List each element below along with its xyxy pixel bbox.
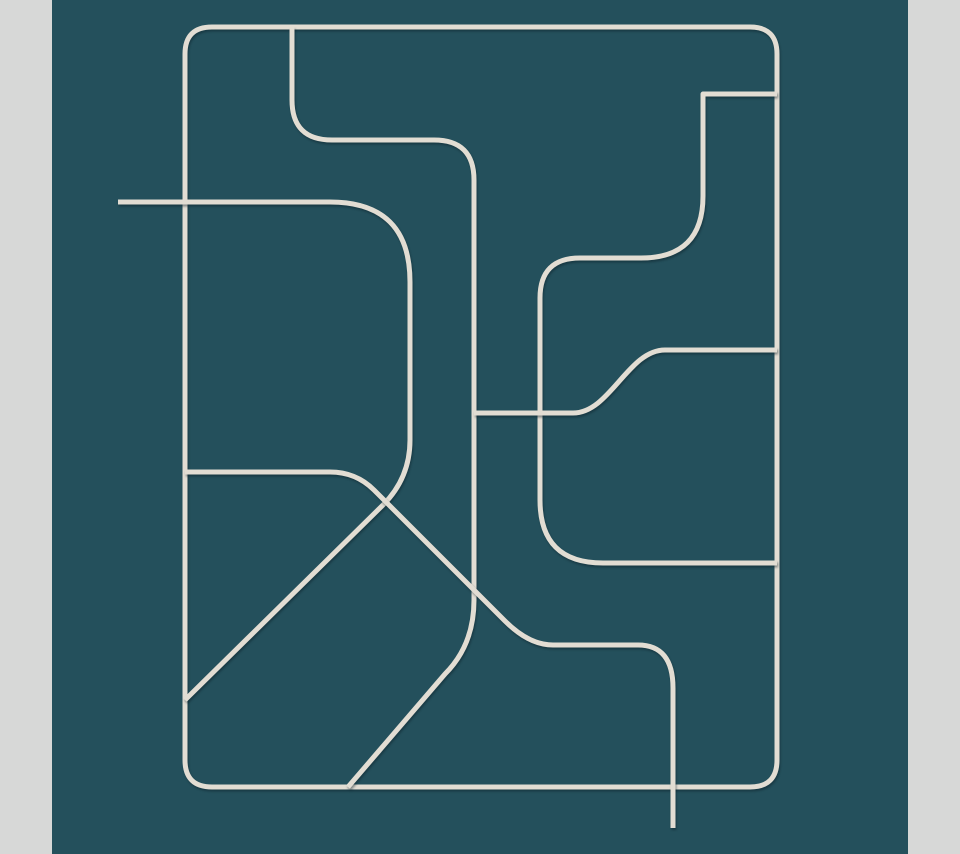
left-margin-bar: [0, 0, 52, 854]
line-group: [118, 27, 777, 828]
left-horizontal-to-diagonal-d-line: [118, 202, 410, 700]
top-hook-to-bottom-diagonal-line: [292, 27, 474, 787]
outer-rounded-rectangle: [185, 27, 777, 787]
center-s-curve-line: [474, 350, 777, 413]
teal-panel: [52, 0, 908, 854]
right-margin-bar: [908, 0, 960, 854]
line-art-svg: [52, 0, 908, 854]
right-zigzag-pipe-line: [540, 94, 777, 563]
mid-horizontal-diagonal-tail-line: [185, 472, 673, 828]
abstract-line-art: [0, 0, 960, 854]
